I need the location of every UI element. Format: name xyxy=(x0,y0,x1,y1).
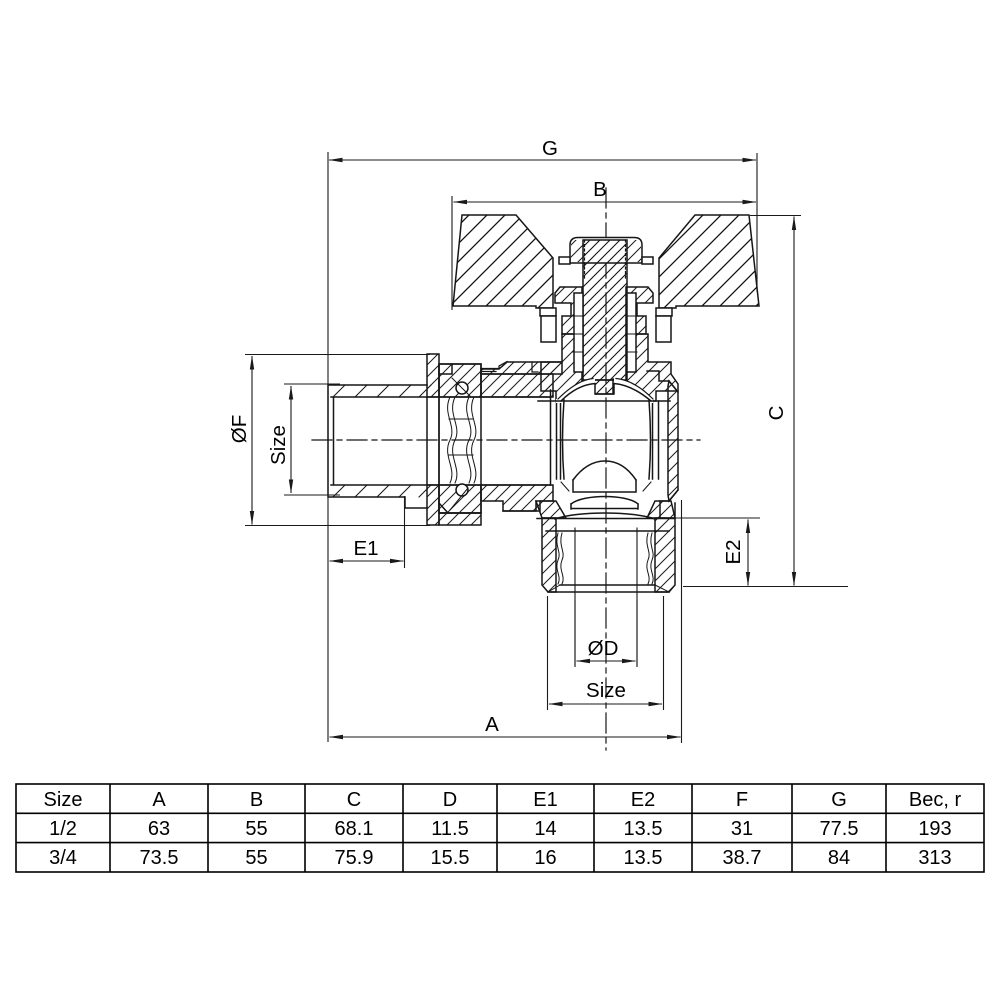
svg-text:G: G xyxy=(831,789,847,811)
svg-text:73.5: 73.5 xyxy=(140,847,179,869)
svg-text:16: 16 xyxy=(534,847,556,869)
svg-text:C: C xyxy=(765,405,788,420)
svg-text:1/2: 1/2 xyxy=(49,818,77,840)
svg-text:63: 63 xyxy=(148,818,170,840)
svg-text:E2: E2 xyxy=(722,539,745,564)
svg-text:A: A xyxy=(152,789,166,811)
svg-text:55: 55 xyxy=(245,818,267,840)
svg-text:38.7: 38.7 xyxy=(723,847,762,869)
svg-text:ØD: ØD xyxy=(588,637,619,660)
svg-text:F: F xyxy=(736,789,748,811)
svg-text:Size: Size xyxy=(586,679,626,702)
svg-text:3/4: 3/4 xyxy=(49,847,77,869)
svg-text:Size: Size xyxy=(267,425,290,465)
svg-text:E2: E2 xyxy=(631,789,655,811)
svg-text:84: 84 xyxy=(828,847,850,869)
svg-text:E1: E1 xyxy=(533,789,557,811)
svg-text:77.5: 77.5 xyxy=(820,818,859,840)
svg-text:68.1: 68.1 xyxy=(335,818,374,840)
svg-text:Bec, r: Bec, r xyxy=(909,789,962,811)
svg-text:B: B xyxy=(250,789,263,811)
svg-text:B: B xyxy=(593,178,607,201)
svg-text:E1: E1 xyxy=(353,537,378,560)
svg-text:A: A xyxy=(485,713,499,736)
svg-text:Size: Size xyxy=(44,789,83,811)
svg-text:G: G xyxy=(542,137,558,160)
svg-text:C: C xyxy=(347,789,361,811)
svg-text:13.5: 13.5 xyxy=(624,818,663,840)
svg-text:15.5: 15.5 xyxy=(431,847,470,869)
svg-text:31: 31 xyxy=(731,818,753,840)
svg-text:193: 193 xyxy=(918,818,951,840)
svg-text:55: 55 xyxy=(245,847,267,869)
svg-text:313: 313 xyxy=(918,847,951,869)
svg-text:D: D xyxy=(443,789,457,811)
svg-text:75.9: 75.9 xyxy=(335,847,374,869)
svg-text:ØF: ØF xyxy=(228,415,251,443)
svg-text:11.5: 11.5 xyxy=(431,818,468,840)
svg-text:13.5: 13.5 xyxy=(624,847,663,869)
svg-text:14: 14 xyxy=(534,818,556,840)
